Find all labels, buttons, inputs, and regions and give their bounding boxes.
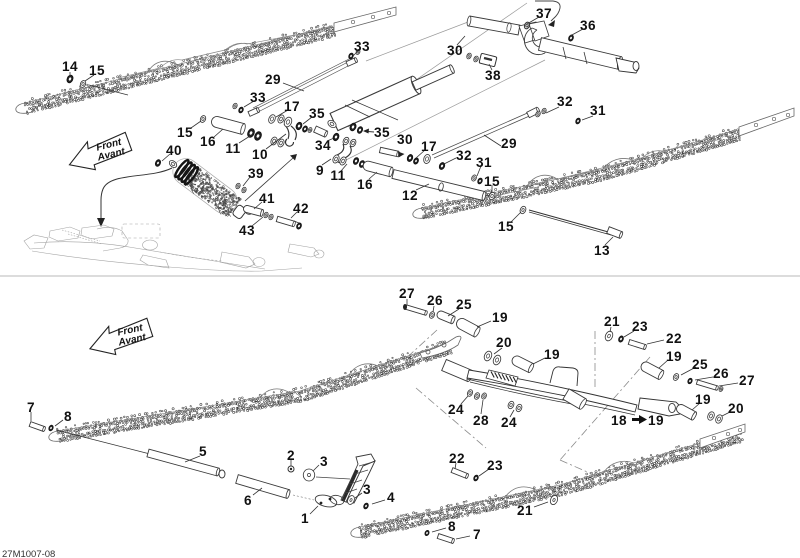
svg-text:39: 39 bbox=[248, 166, 264, 181]
svg-text:28: 28 bbox=[473, 413, 489, 428]
svg-text:33: 33 bbox=[250, 90, 266, 105]
svg-text:4: 4 bbox=[387, 490, 395, 505]
svg-text:11: 11 bbox=[225, 141, 240, 156]
svg-text:7: 7 bbox=[27, 400, 35, 415]
svg-text:31: 31 bbox=[476, 155, 492, 170]
svg-text:10: 10 bbox=[252, 147, 268, 162]
svg-text:30: 30 bbox=[447, 43, 463, 58]
svg-text:35: 35 bbox=[374, 125, 390, 140]
svg-text:9: 9 bbox=[316, 163, 324, 178]
svg-text:1: 1 bbox=[301, 511, 309, 526]
svg-text:35: 35 bbox=[309, 106, 325, 121]
svg-text:27M1007-08: 27M1007-08 bbox=[2, 549, 55, 558]
svg-text:5: 5 bbox=[199, 444, 207, 459]
svg-text:19: 19 bbox=[648, 413, 664, 428]
svg-text:36: 36 bbox=[580, 18, 596, 33]
svg-text:24: 24 bbox=[501, 415, 517, 430]
svg-text:3: 3 bbox=[363, 482, 371, 497]
svg-text:21: 21 bbox=[517, 503, 533, 518]
svg-text:20: 20 bbox=[496, 335, 512, 350]
svg-text:3: 3 bbox=[320, 454, 328, 469]
svg-text:17: 17 bbox=[284, 99, 300, 114]
svg-text:19: 19 bbox=[695, 392, 711, 407]
svg-text:43: 43 bbox=[239, 223, 255, 238]
svg-text:17: 17 bbox=[421, 139, 437, 154]
svg-text:19: 19 bbox=[666, 349, 682, 364]
svg-text:18: 18 bbox=[611, 413, 627, 428]
svg-text:14: 14 bbox=[62, 59, 78, 74]
svg-text:15: 15 bbox=[498, 219, 514, 234]
svg-text:26: 26 bbox=[427, 293, 443, 308]
svg-text:19: 19 bbox=[544, 347, 560, 362]
svg-text:8: 8 bbox=[64, 409, 72, 424]
svg-text:12: 12 bbox=[402, 188, 418, 203]
svg-text:26: 26 bbox=[713, 366, 729, 381]
svg-text:33: 33 bbox=[354, 39, 370, 54]
svg-text:23: 23 bbox=[632, 319, 648, 334]
svg-text:38: 38 bbox=[485, 68, 501, 83]
svg-text:23: 23 bbox=[487, 458, 503, 473]
svg-text:25: 25 bbox=[692, 357, 708, 372]
svg-text:20: 20 bbox=[728, 401, 744, 416]
svg-text:25: 25 bbox=[456, 297, 472, 312]
svg-text:42: 42 bbox=[293, 201, 309, 216]
svg-text:31: 31 bbox=[590, 103, 606, 118]
svg-text:27: 27 bbox=[739, 373, 755, 388]
svg-text:8: 8 bbox=[448, 519, 456, 534]
svg-text:19: 19 bbox=[492, 310, 508, 325]
svg-text:29: 29 bbox=[265, 72, 281, 87]
svg-text:15: 15 bbox=[177, 125, 193, 140]
svg-text:2: 2 bbox=[287, 448, 295, 463]
svg-text:24: 24 bbox=[448, 402, 464, 417]
svg-text:16: 16 bbox=[357, 177, 373, 192]
svg-text:32: 32 bbox=[557, 94, 573, 109]
svg-text:22: 22 bbox=[449, 451, 465, 466]
svg-text:15: 15 bbox=[89, 63, 105, 78]
svg-text:11: 11 bbox=[330, 168, 345, 183]
svg-text:6: 6 bbox=[244, 493, 252, 508]
svg-text:41: 41 bbox=[259, 191, 275, 206]
svg-text:40: 40 bbox=[166, 143, 182, 158]
svg-text:13: 13 bbox=[594, 243, 610, 258]
svg-text:15: 15 bbox=[484, 174, 500, 189]
svg-text:27: 27 bbox=[399, 286, 415, 301]
svg-text:37: 37 bbox=[536, 6, 552, 21]
svg-text:16: 16 bbox=[200, 134, 216, 149]
svg-text:32: 32 bbox=[456, 148, 472, 163]
svg-text:34: 34 bbox=[315, 138, 331, 153]
svg-text:29: 29 bbox=[501, 136, 517, 151]
svg-text:7: 7 bbox=[473, 527, 481, 542]
svg-text:21: 21 bbox=[604, 314, 620, 329]
svg-text:30: 30 bbox=[397, 132, 413, 147]
svg-text:22: 22 bbox=[666, 331, 682, 346]
